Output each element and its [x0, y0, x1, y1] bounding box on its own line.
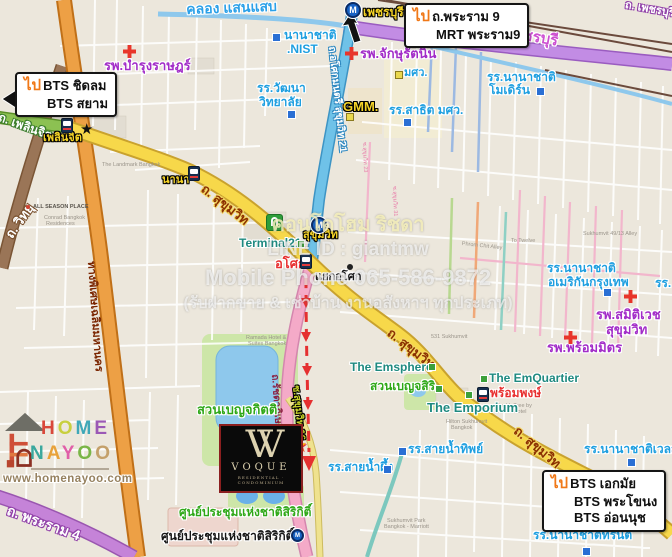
voque-subtitle: RESIDENTIAL · CONDOMINIUM: [221, 475, 301, 485]
voque-monogram: VV: [221, 427, 301, 463]
american-school-label-2: อเมริกันกรุงเทพ: [548, 276, 629, 288]
emquartier-square-marker: [480, 375, 488, 383]
trinity-square-marker: [582, 547, 591, 556]
sainamphueng-square-marker: [383, 465, 392, 474]
minor-map-label: Suites Bangkok: [248, 342, 286, 348]
american-school-label-1: รร.นานาชาติ: [547, 262, 616, 274]
minor-map-label: ALL SEASON PLACE: [33, 205, 89, 211]
homenayoo-logo: HOME NAYOO www.homenayoo.com: [3, 404, 125, 492]
bts-phloenchit-icon: [61, 118, 73, 133]
mrt-phetchaburi-icon: M: [345, 2, 361, 18]
homenayoo-letter: H: [41, 418, 58, 439]
callout-line: ไปถ.พระราม 9: [413, 7, 520, 27]
homenayoo-letter: O: [58, 418, 76, 439]
gmm-square-marker: [346, 113, 354, 121]
callout-line: BTS สยาม: [24, 96, 108, 113]
terminal21-icon: [266, 214, 283, 231]
benjakitti-park-label: สวนเบญจกิตติ: [197, 403, 277, 416]
modern-school-label-1: รร.นานาชาติ: [487, 71, 556, 83]
swu-square-marker: [395, 71, 403, 79]
minor-map-label: To Twelve: [511, 239, 535, 245]
emsphere-label: The Emsphere: [350, 361, 433, 373]
wells-school-label: รร.นานาชาติเวลส์: [584, 443, 672, 455]
minor-map-label: Residences: [46, 222, 75, 228]
emporium-square-marker: [465, 391, 473, 399]
rutnin-hospital-label: รพ.จักษุรัตนิน: [360, 47, 436, 60]
terminal21-square-marker: [297, 240, 305, 248]
wells-square-marker: [627, 458, 636, 467]
sainamthip-school-label: รร.สายน้ำทิพย์: [408, 443, 483, 455]
benjasiri-square-marker: [435, 385, 443, 393]
samitivej-hospital-label-2: สุขุมวิท: [606, 323, 647, 336]
swu-label: มศว.: [404, 68, 427, 79]
callout-rama9: ไปถ.พระราม 9MRT พระราม9: [404, 3, 529, 48]
homenayoo-word-home: HOME: [41, 419, 110, 438]
voque-name: VOQUE: [221, 462, 301, 473]
minor-map-label: 531 Sukhumvit: [431, 335, 467, 341]
nist-school-label-2: .NIST: [287, 43, 318, 55]
asok-junction-dot: [347, 264, 353, 270]
callout-prefix: ไป: [413, 8, 430, 25]
emsphere-square-marker: [428, 363, 436, 371]
qsncc-label: ศูนย์ประชุมแห่งชาติสิริกิติ์: [179, 506, 311, 518]
callout-prefix: ไป: [24, 77, 41, 94]
nist-school-label-1: นานาชาติ: [284, 29, 337, 41]
mrt-sukhumvit-icon: M: [311, 217, 327, 233]
minor-map-label: Bangkok: [451, 426, 472, 432]
mrt-qsncc-icon: M: [291, 529, 304, 542]
mrt-phetchaburi-label: เพชรบุรี: [363, 6, 404, 18]
homenayoo-letter: E: [94, 418, 110, 439]
bts-asok-icon: [300, 254, 312, 269]
callout-line: ไปBTS ชิดลม: [24, 76, 108, 96]
minor-map-label: Bangkok - Marriott: [384, 525, 429, 531]
homenayoo-letter: M: [76, 418, 95, 439]
phrommit-hospital-label: รพ.พร้อมมิตร: [547, 341, 622, 354]
callout-ekkamai: ไปBTS เอกมัยBTS พระโขนงBTS อ่อนนุช: [542, 470, 666, 532]
wattana-school-label-1: รร.วัฒนา: [257, 82, 306, 94]
gmm-label: GMM.: [343, 100, 378, 113]
sainamthip-square-marker: [398, 447, 407, 456]
satit-square-marker: [403, 118, 412, 127]
emporium-label: The Emporium: [427, 401, 518, 414]
qsncc-station-label: ศูนย์ประชุมแห่งชาติสิริกิติ์: [161, 530, 293, 542]
callout-line: BTS พระโขนง: [551, 494, 657, 511]
nana-station-label: นานา: [162, 175, 189, 186]
homenayoo-word-nayoo: NAYOO: [30, 444, 113, 463]
allseason-poi-dot: [26, 205, 30, 209]
phloenchit-junction-star-icon: ★: [80, 122, 93, 137]
emquartier-label: The EmQuartier: [489, 372, 579, 384]
callout-line: MRT พระราม9: [413, 27, 520, 44]
minor-map-label: Sukhumvit 49/13 Alley: [583, 232, 637, 238]
homenayoo-url: www.homenayoo.com: [3, 473, 132, 485]
benjasiri-park-label: สวนเบญจสิริ: [370, 380, 435, 392]
callout-line: ไปBTS เอกมัย: [551, 474, 657, 494]
location-map: คอนโดโฮม ริชดา LINE ID : giantmw Mobile …: [0, 0, 672, 557]
homenayoo-letter: N: [30, 443, 47, 464]
american-square-marker: [603, 288, 612, 297]
modern-school-label-2: โมเดิร์น: [489, 84, 530, 96]
voque-condo-logo: VV VOQUE RESIDENTIAL · CONDOMINIUM: [219, 424, 303, 493]
minor-map-label: The Landmark Bangkok: [102, 163, 160, 169]
minor-map-label: ซ.สุขุมวิท 23: [361, 142, 368, 173]
samitivej-hospital-label-1: รพ.สมิติเวช: [596, 308, 661, 321]
satit-swu-school-label: รร.สาธิต มศว.: [389, 104, 463, 116]
bumrungrad-hospital-label: รพ.บำรุงราษฎร์: [104, 59, 191, 72]
minor-street-green: [449, 198, 452, 314]
wattana-square-marker: [287, 110, 296, 119]
nist-square-marker: [272, 33, 281, 42]
wattana-school-label-2: วิทยาลัย: [259, 96, 302, 108]
callout-chitlom: ไปBTS ชิดลมBTS สยาม: [15, 72, 117, 117]
homenayoo-letter: Y: [62, 443, 78, 464]
modern-square-marker: [536, 87, 545, 96]
callout-line: BTS อ่อนนุช: [551, 510, 657, 527]
minor-map-label: ซ.สุขุมวิท 31: [391, 186, 398, 217]
minor-street-teal: [501, 212, 506, 330]
bts-nana-icon: [188, 166, 200, 181]
phloenchit-station-label: เพลินจิต: [43, 133, 82, 144]
homenayoo-letter: O: [77, 443, 95, 464]
terminal21-label: Terminal21: [239, 237, 301, 249]
asok-junction-label: แยกอโศก: [315, 272, 361, 283]
homenayoo-letter: O: [95, 443, 113, 464]
homenayoo-tagline: [31, 468, 109, 470]
edge-school-label: รร.: [655, 277, 671, 289]
canal-saensaep-label: คลอง แสนแสบ: [186, 0, 277, 16]
bts-phromphong-icon: [477, 387, 489, 402]
homenayoo-letter: A: [47, 443, 62, 464]
benjakitti-lake: [216, 346, 278, 432]
callout-prefix: ไป: [551, 475, 568, 492]
phromphong-station-label: พร้อมพงษ์: [490, 387, 541, 399]
